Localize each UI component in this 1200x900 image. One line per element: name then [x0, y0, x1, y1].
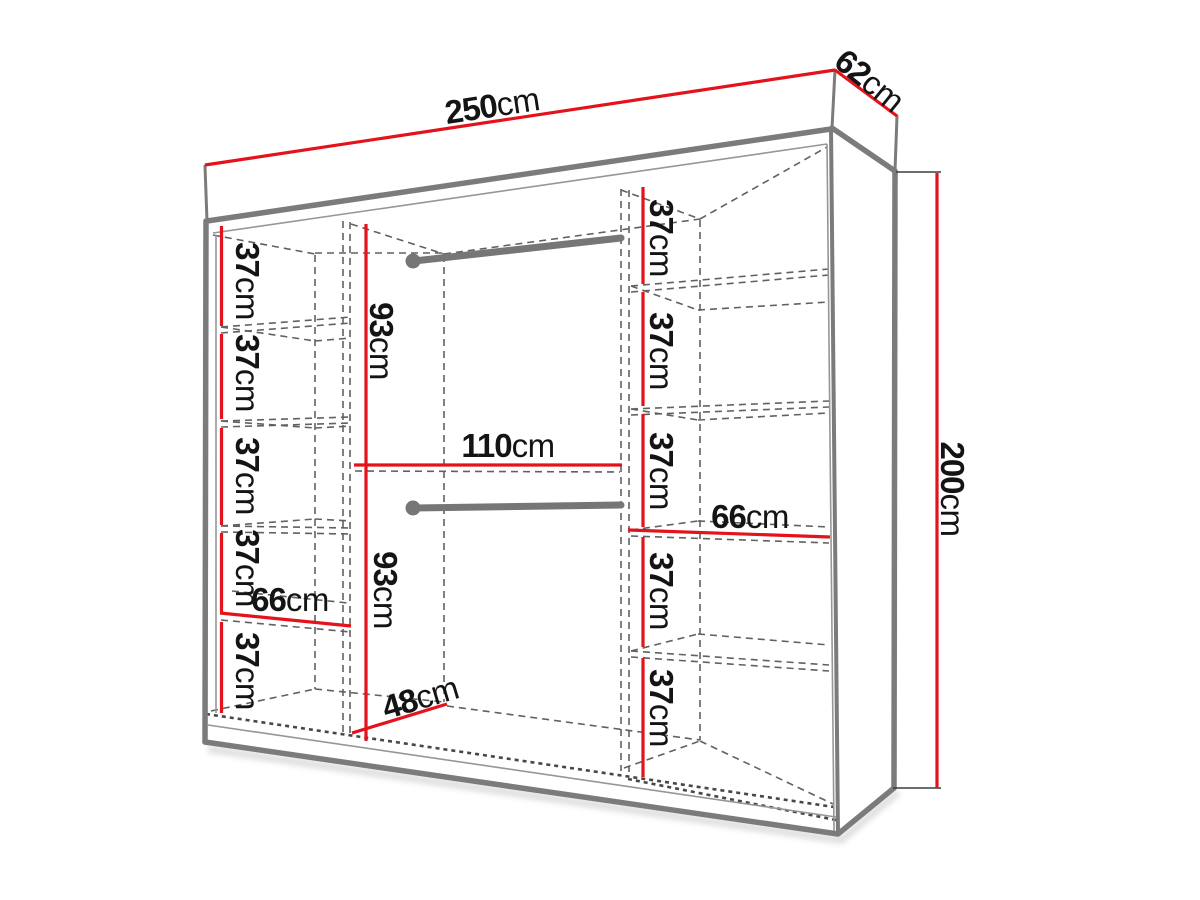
left-shelf-label-1: 37cm	[230, 242, 267, 320]
overall-width-label: 250cm	[442, 80, 542, 131]
hanging-top-label: 93cm	[364, 302, 401, 380]
left-shelf-label-5: 37cm	[230, 632, 267, 710]
interior-depth-label: 48cm	[377, 668, 462, 726]
right-shelf-label-4: 37cm	[644, 552, 681, 630]
right-shelf-label-3: 37cm	[644, 432, 681, 510]
right-shelf-label-1: 37cm	[644, 199, 681, 277]
overall-depth-label: 62cm	[828, 41, 912, 119]
right-shelf-label-5: 37cm	[644, 669, 681, 747]
left-shelf-width-label: 66cm	[251, 581, 329, 618]
wardrobe-diagram-canvas: 250cm 62cm 200cm 37cm 37cm 37cm 37cm 37c…	[0, 0, 1200, 900]
center-width-label: 110cm	[461, 427, 554, 464]
wardrobe-dimension-diagram-page: 250cm 62cm 200cm 37cm 37cm 37cm 37cm 37c…	[0, 0, 1200, 900]
left-shelf-label-2: 37cm	[230, 334, 267, 412]
floor-stitch-lines	[206, 714, 836, 820]
hanging-bottom-label: 93cm	[368, 551, 405, 629]
right-shelf-label-2: 37cm	[644, 312, 681, 390]
overall-height-label: 200cm	[935, 441, 972, 536]
hanging-rail-bottom	[406, 501, 622, 516]
left-shelf-label-3: 37cm	[230, 437, 267, 515]
right-shelf-width-label: 66cm	[711, 498, 789, 535]
